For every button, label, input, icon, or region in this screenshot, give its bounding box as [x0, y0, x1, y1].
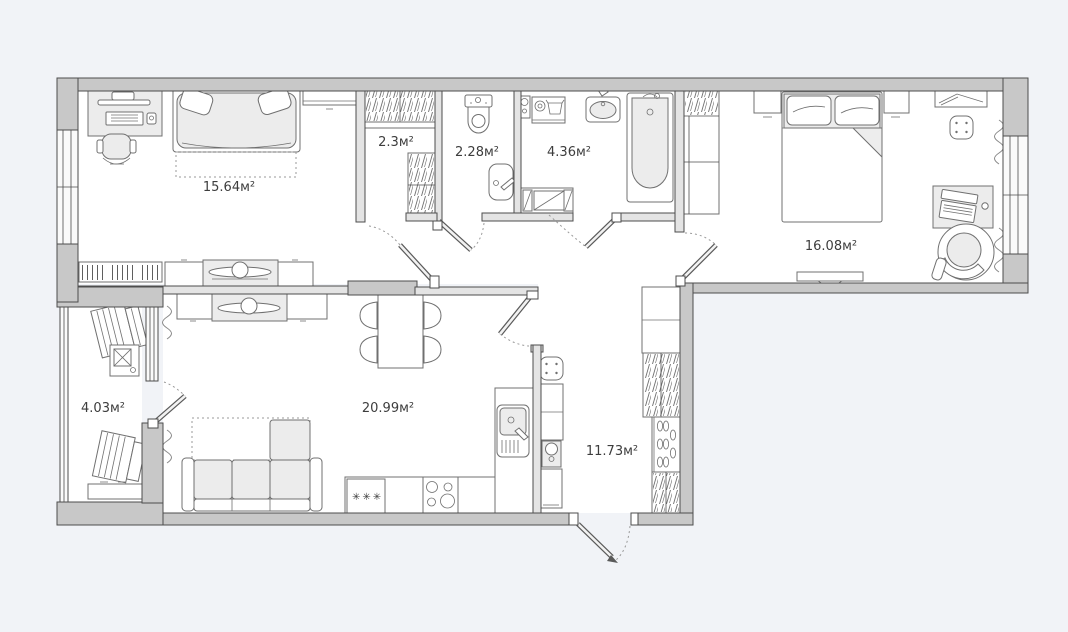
- wall: [356, 88, 365, 222]
- closet-shelves-icon: [408, 153, 435, 217]
- bathtub-icon: [627, 93, 673, 202]
- kitchen-sink-icon: [497, 405, 529, 457]
- bench-icon: [935, 90, 987, 107]
- area-label-bathroom: 4.36м²: [547, 145, 591, 160]
- door-entrance: [569, 513, 638, 563]
- tall-cabinet-icon: [540, 384, 563, 508]
- wall: [406, 213, 437, 221]
- wc-sink-icon: [489, 164, 515, 200]
- stool-icon: [950, 116, 973, 139]
- nightstand-icon: [754, 90, 781, 113]
- wall: [482, 213, 573, 221]
- desk-icon: [88, 90, 162, 136]
- tv-unit-icon: [165, 260, 313, 288]
- area-label-living-room: 15.64м²: [203, 180, 255, 195]
- area-label-kitchen-living: 20.99м²: [362, 401, 414, 416]
- shoe-rack-icon: [652, 417, 680, 472]
- area-label-closet: 2.3м²: [378, 135, 414, 150]
- window: [57, 130, 78, 244]
- bedroom-wardrobe-icon: [684, 86, 719, 214]
- wall: [533, 345, 541, 513]
- wall: [617, 213, 675, 221]
- bath-screen-icon: [520, 188, 573, 213]
- dining-table-icon: [378, 295, 423, 368]
- wall: [435, 88, 442, 221]
- wall: [142, 423, 163, 503]
- toilet-icon: [465, 95, 492, 133]
- wall: [57, 78, 1007, 91]
- wall: [57, 244, 78, 302]
- balcony-console-icon: [88, 482, 144, 499]
- freezer-stars: ✳✳✳: [352, 492, 383, 503]
- hanging-rail-icon: [365, 89, 435, 128]
- wall: [633, 513, 693, 525]
- fridge-icon: ✳✳✳: [347, 479, 385, 513]
- window: [1003, 136, 1028, 254]
- floor-plan: ✳✳✳: [0, 0, 1068, 632]
- wall: [348, 281, 417, 295]
- bookshelf-icon: [79, 262, 162, 282]
- wall: [1003, 78, 1028, 136]
- tv-unit-icon: [177, 293, 327, 321]
- side-table-icon: [110, 345, 139, 376]
- hall-closet-icon: [652, 472, 680, 513]
- bed-icon: [782, 92, 882, 222]
- area-label-hallway: 11.73м²: [586, 444, 638, 459]
- wall: [57, 78, 78, 131]
- wall: [683, 283, 1028, 293]
- wall: [514, 88, 521, 213]
- wall: [163, 513, 576, 525]
- wall: [680, 283, 693, 525]
- bedroom-desk-icon: [933, 186, 993, 228]
- wall: [675, 88, 684, 232]
- stool-icon: [540, 357, 563, 380]
- area-label-bedroom: 16.08м²: [805, 239, 857, 254]
- area-label-wc: 2.28м²: [455, 145, 499, 160]
- hall-wardrobe-icon: [642, 287, 680, 417]
- area-label-balcony: 4.03м²: [81, 401, 125, 416]
- wall: [57, 502, 163, 525]
- stove-icon: [423, 477, 458, 513]
- nightstand-icon: [884, 90, 909, 113]
